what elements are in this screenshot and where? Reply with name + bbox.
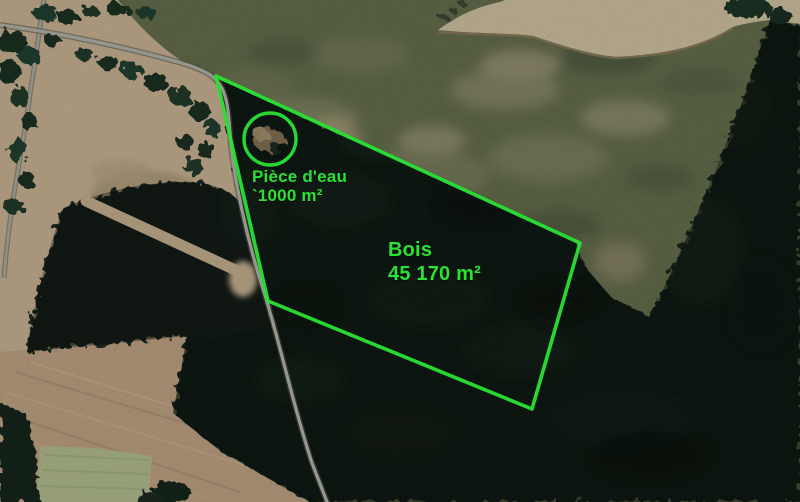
- pond-label: Pièce d'eau `1000 m²: [252, 167, 347, 205]
- woods-label-line1: Bois: [388, 238, 481, 262]
- map-canvas[interactable]: Pièce d'eau `1000 m² Bois 45 170 m²: [0, 0, 800, 502]
- woods-label: Bois 45 170 m²: [388, 238, 481, 286]
- pond-label-line1: Pièce d'eau: [252, 167, 347, 186]
- pond-label-line2: `1000 m²: [252, 186, 347, 205]
- woods-label-line2: 45 170 m²: [388, 262, 481, 286]
